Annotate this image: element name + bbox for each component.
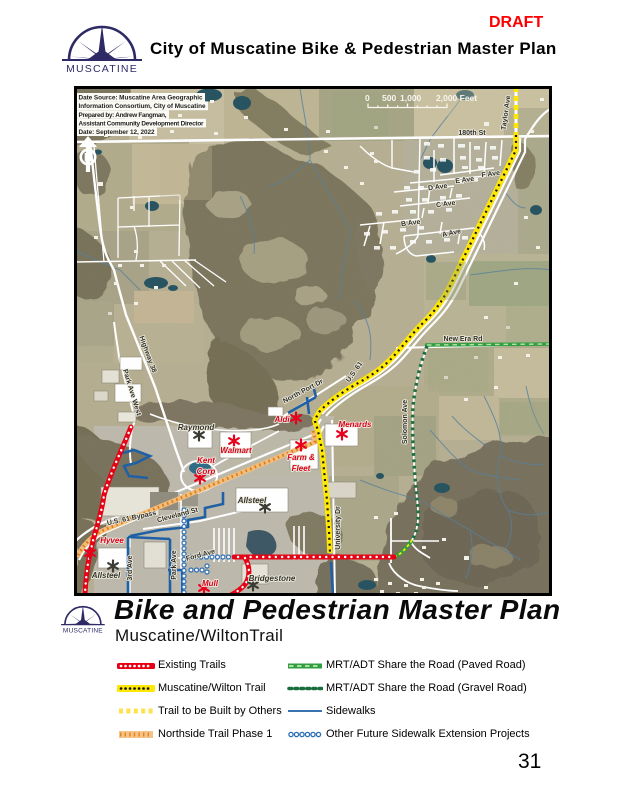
svg-text:Fleet: Fleet [292, 464, 311, 473]
svg-text:Date: September 12, 2022: Date: September 12, 2022 [79, 129, 155, 136]
svg-text:Prepared by: Andrew Fangman,: Prepared by: Andrew Fangman, [79, 112, 167, 119]
svg-text:Allsteel: Allsteel [237, 496, 267, 505]
svg-text:180th St: 180th St [458, 130, 486, 137]
svg-text:Hyvee: Hyvee [100, 536, 124, 545]
svg-text:Information Consortium, City o: Information Consortium, City of Muscatin… [79, 103, 206, 110]
svg-text:Aldi: Aldi [273, 415, 290, 424]
svg-text:Menards: Menards [339, 420, 372, 429]
svg-text:Walmart: Walmart [220, 446, 252, 455]
svg-text:Mull: Mull [202, 579, 219, 588]
svg-text:New Era Rd: New Era Rd [444, 336, 483, 343]
svg-text:Assistant Community Developmen: Assistant Community Development Director [79, 120, 205, 127]
svg-text:Corp: Corp [197, 467, 216, 476]
svg-text:Park Ave: Park Ave [171, 550, 178, 580]
svg-text:Bridgestone: Bridgestone [249, 574, 296, 583]
svg-text:500: 500 [382, 93, 396, 103]
svg-text:N: N [84, 153, 92, 165]
svg-text:2,000 Feet: 2,000 Feet [436, 93, 477, 103]
svg-text:Farm &: Farm & [287, 453, 315, 462]
svg-text:Solomon Ave: Solomon Ave [402, 400, 409, 444]
svg-text:Allsteel: Allsteel [91, 571, 121, 580]
svg-text:0: 0 [365, 93, 370, 103]
svg-text:Raymond: Raymond [178, 423, 216, 432]
svg-text:1,000: 1,000 [400, 93, 422, 103]
svg-text:University Dr: University Dr [335, 506, 342, 550]
svg-text:Kent: Kent [197, 456, 215, 465]
svg-text:Date Source: Muscatine Area G: Date Source: Muscatine Area Geographic [79, 95, 203, 102]
svg-text:MUSCATINE: MUSCATINE [66, 63, 138, 75]
svg-text:MUSCATINE: MUSCATINE [63, 627, 103, 634]
svg-text:3rd Ave: 3rd Ave [127, 555, 134, 580]
